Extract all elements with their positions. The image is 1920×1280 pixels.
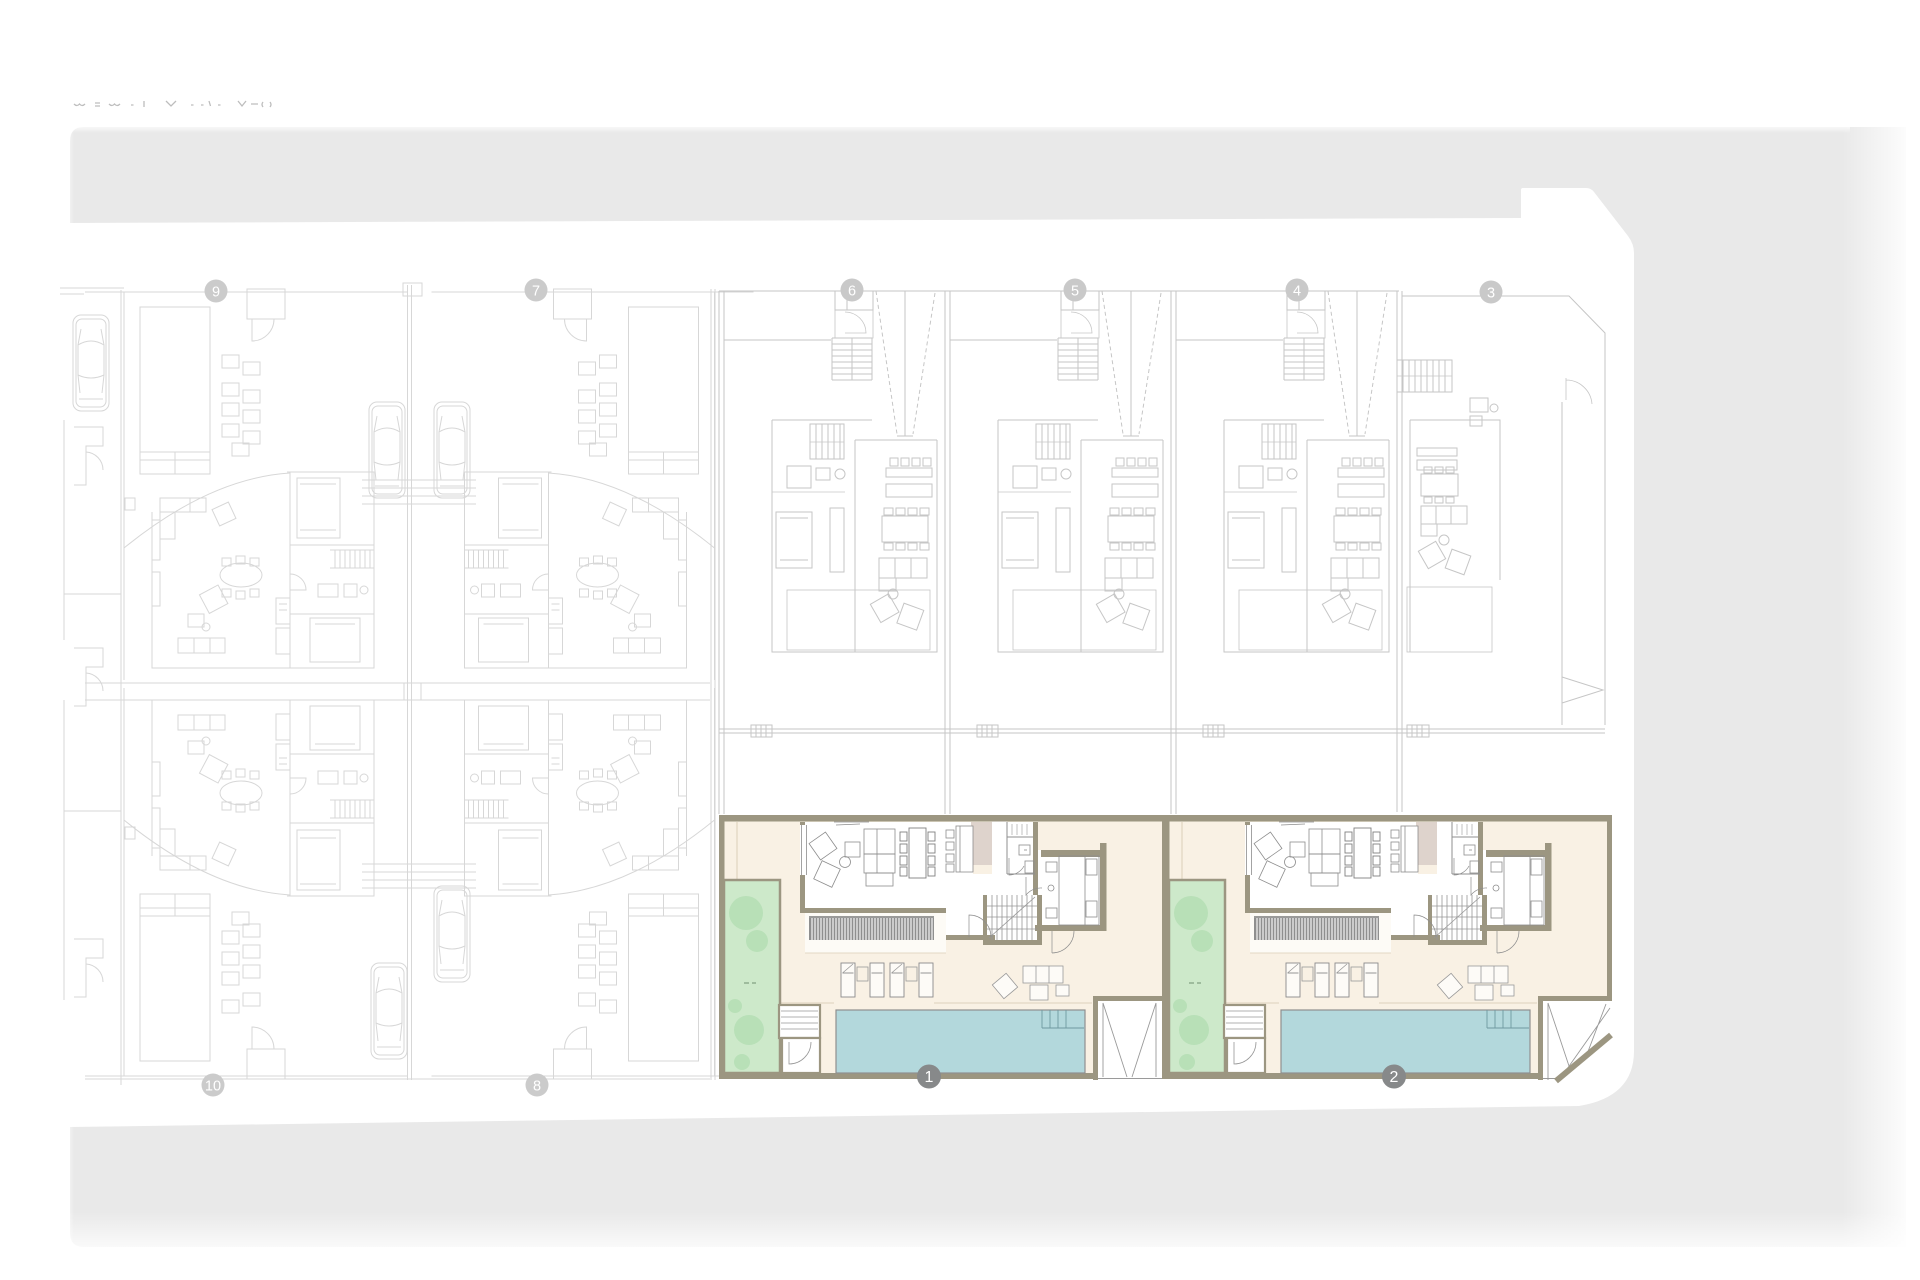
svg-text:3: 3 <box>1487 286 1495 302</box>
svg-text:5: 5 <box>1071 284 1079 300</box>
svg-text:7: 7 <box>532 284 540 300</box>
svg-text:4: 4 <box>1293 284 1301 300</box>
svg-text:1: 1 <box>925 1069 934 1086</box>
svg-text:8: 8 <box>533 1079 541 1095</box>
svg-text:2: 2 <box>1390 1069 1399 1086</box>
svg-text:9: 9 <box>212 285 220 301</box>
svg-text:6: 6 <box>848 284 856 300</box>
svg-text:10: 10 <box>205 1079 221 1095</box>
